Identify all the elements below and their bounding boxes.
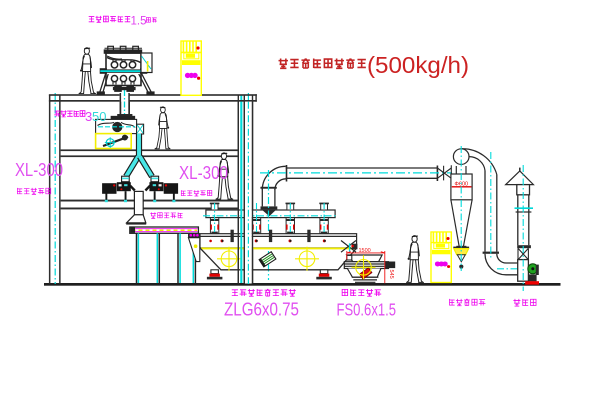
svg-text:1.5: 1.5 (131, 16, 147, 28)
svg-text:ZLG6x0.75: ZLG6x0.75 (224, 300, 299, 320)
svg-text:XL-300: XL-300 (15, 159, 63, 180)
svg-text:545: 545 (388, 270, 394, 279)
svg-text:XL-300: XL-300 (179, 162, 228, 183)
svg-text:FS0.6x1.5: FS0.6x1.5 (337, 300, 397, 320)
svg-text:1500: 1500 (359, 248, 371, 254)
svg-text:(500kg/h): (500kg/h) (367, 52, 469, 78)
svg-text:50: 50 (92, 109, 106, 124)
